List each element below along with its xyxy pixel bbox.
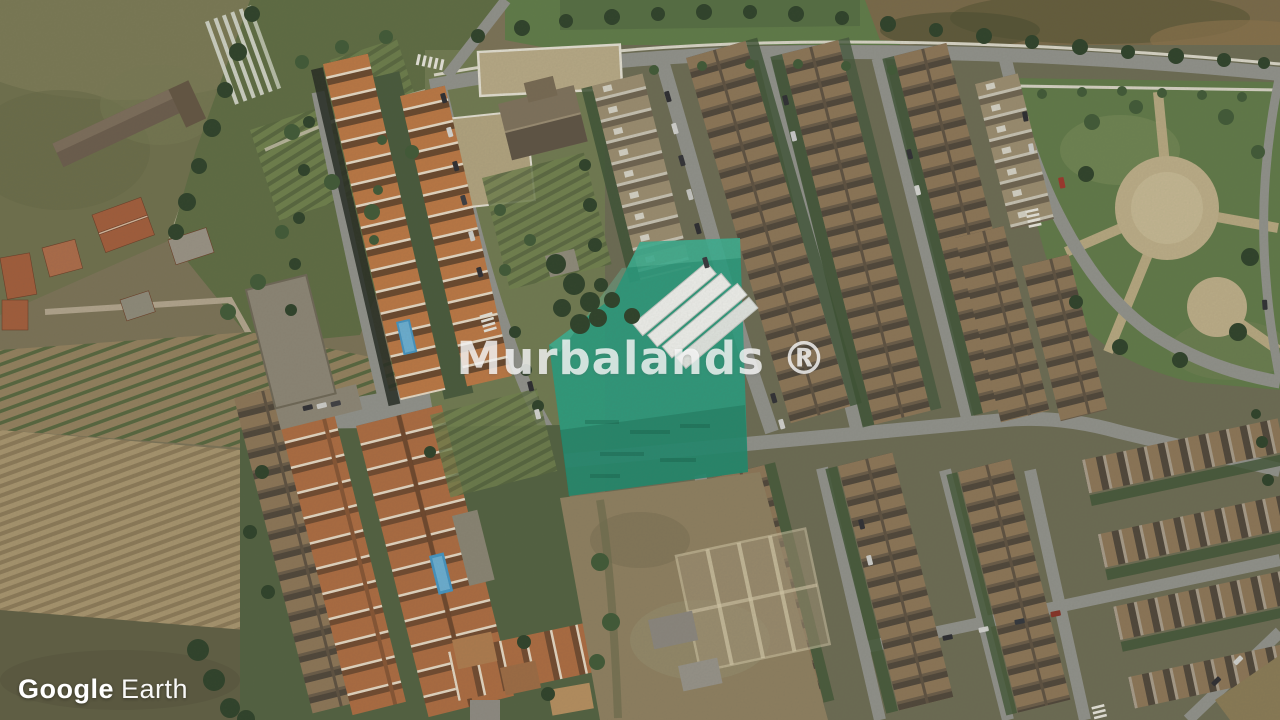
google-earth-attribution: GoogleEarth: [18, 674, 188, 705]
center-watermark: Murbalands ®: [456, 336, 827, 381]
google-logo-text: Google: [18, 674, 114, 704]
satellite-map-canvas[interactable]: Murbalands ® GoogleEarth: [0, 0, 1280, 720]
earth-logo-text: Earth: [121, 674, 188, 704]
